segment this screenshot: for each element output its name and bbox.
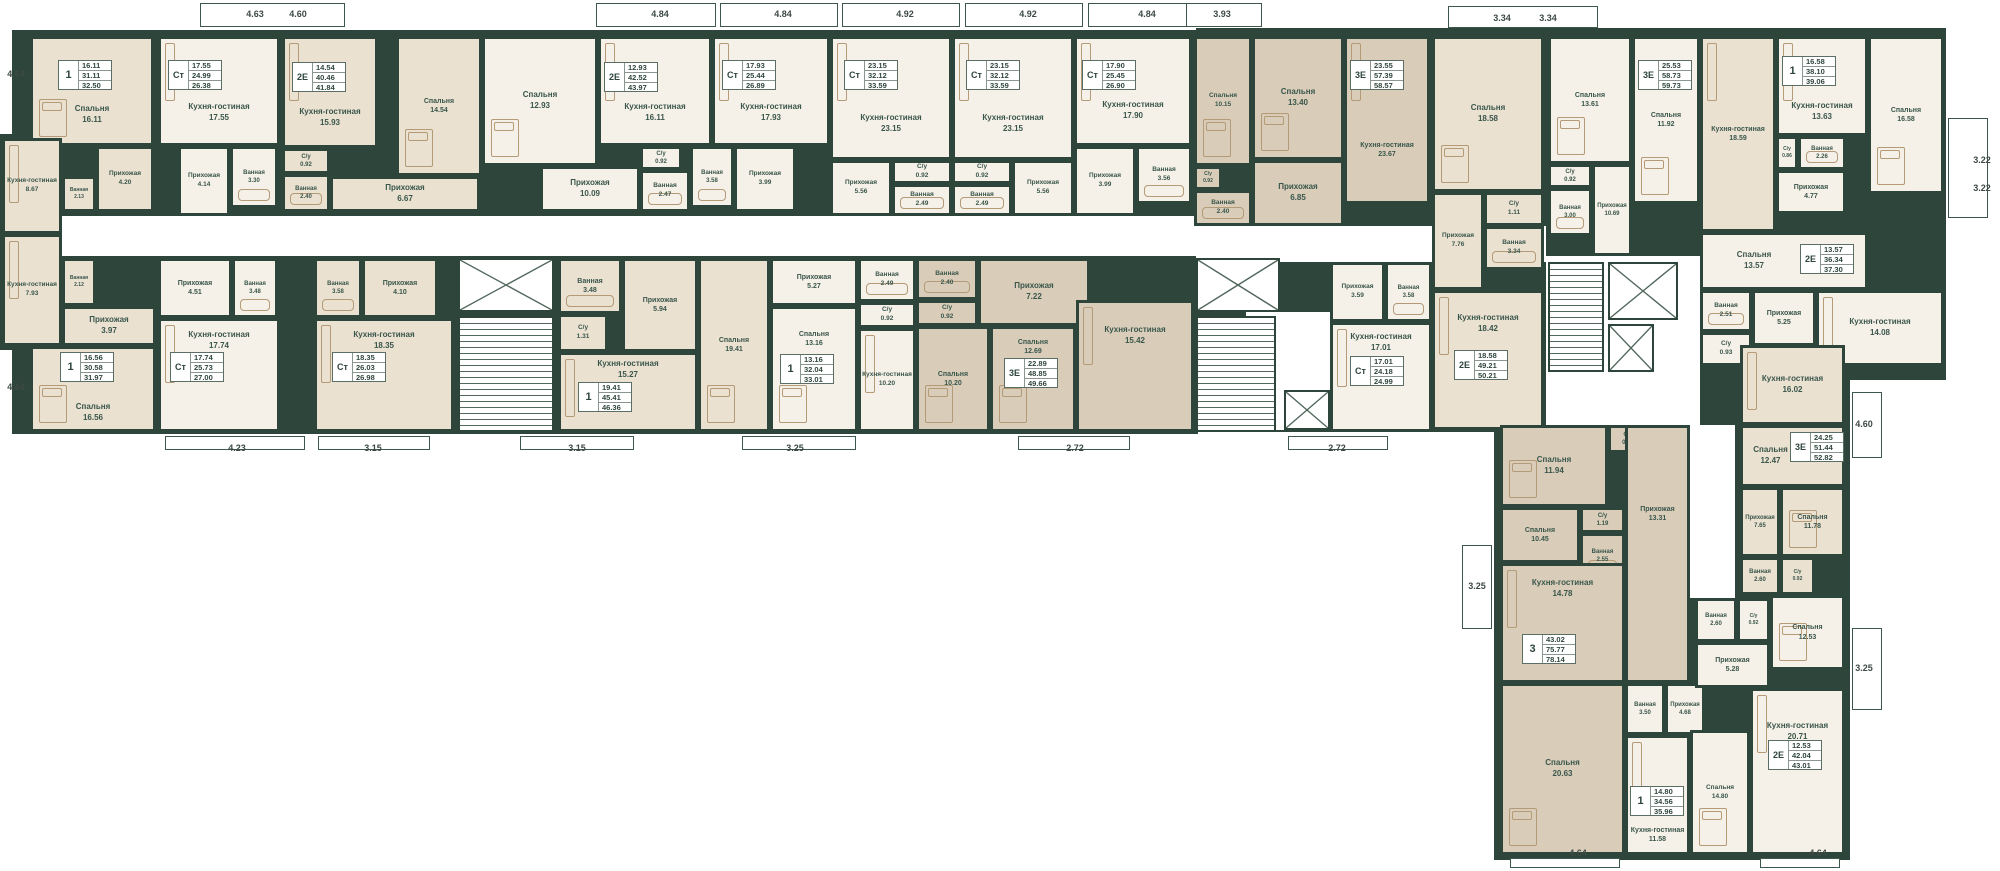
room-label: Ванная3.56 [1152, 166, 1176, 184]
room-name: Ванная [1714, 302, 1738, 311]
room-label: Спальня16.56 [76, 402, 111, 424]
room-label: Кухня-гостиная10.20 [862, 371, 912, 389]
room-area: 20.63 [1545, 769, 1580, 780]
room-name: С/у [655, 150, 667, 158]
room: Ванная3.00 [1548, 188, 1592, 236]
room-name: Прихожая [749, 170, 781, 179]
room-name: Ванная [1211, 199, 1235, 208]
room: Спальня14.80 [1690, 730, 1750, 855]
room-label: Кухня-гостиная18.42 [1457, 313, 1518, 335]
room-name: Прихожая [1027, 179, 1059, 188]
room-label: Ванная3.00 [1559, 204, 1581, 220]
unit-area-value: 43.97 [625, 83, 657, 92]
room-name: С/у [1720, 340, 1733, 349]
room: Кухня-гостиная17.93 [712, 36, 830, 146]
room-label: Ванная3.48 [577, 277, 602, 296]
unit-info-box[interactable]: 119.4145.4146.36 [578, 382, 632, 412]
room-area: 4.20 [109, 179, 141, 188]
dimension-label: 3.15 [568, 443, 586, 453]
unit-type-label: 1 [59, 61, 79, 89]
unit-info-box[interactable]: 3Е23.5557.3958.57 [1350, 60, 1404, 90]
kitchen-counter-icon [321, 325, 331, 383]
unit-area-value: 24.99 [189, 71, 221, 81]
room-name: Кухня-гостиная [740, 102, 801, 113]
room-area: 14.78 [1532, 589, 1593, 600]
unit-area-value: 16.56 [81, 353, 113, 363]
room-area: 17.93 [740, 113, 801, 124]
unit-areas: 19.4145.4146.36 [599, 383, 631, 411]
unit-info-box[interactable]: Ст23.1532.1233.59 [844, 60, 898, 90]
room-name: Ванная [1152, 166, 1176, 175]
room-name: Спальня [76, 402, 111, 413]
room-label: Спальня11.92 [1651, 111, 1681, 130]
room-label: Прихожая10.09 [570, 178, 609, 200]
unit-area-value: 26.89 [743, 81, 775, 90]
room: С/у1.11 [1484, 192, 1544, 226]
room-area: 6.67 [385, 194, 424, 205]
unit-area-value: 27.00 [191, 373, 223, 382]
room: Спальня13.61 [1548, 36, 1632, 164]
unit-area-value: 25.53 [1659, 61, 1691, 71]
unit-info-box[interactable]: Ст17.0124.1824.99 [1350, 356, 1404, 386]
room: Прихожая5.27 [770, 258, 858, 306]
room: Кухня-гостиная13.63 [1776, 36, 1868, 136]
room-area: 4.77 [1794, 192, 1829, 201]
unit-area-value: 42.04 [1789, 751, 1821, 761]
room: Ванная2.47 [640, 170, 690, 212]
unit-areas: 23.1532.1233.59 [987, 61, 1019, 89]
room-area: 0.92 [976, 172, 989, 181]
room-name: Спальня [1737, 250, 1772, 261]
room-name: Кухня-гостиная [188, 330, 249, 341]
unit-type-label: 1 [1783, 57, 1803, 85]
unit-area-value: 40.46 [313, 73, 345, 83]
room-label: Прихожая3.99 [749, 170, 781, 188]
room-area: 8.67 [7, 186, 57, 195]
kitchen-counter-icon [1747, 352, 1757, 410]
room-name: С/у [881, 306, 894, 315]
room-name: Спальня [1545, 758, 1580, 769]
dimension-label: 4.64 [7, 69, 25, 79]
room-name: Ванная [875, 271, 899, 280]
room-area: 2.40 [295, 193, 317, 201]
room: Прихожая5.28 [1695, 642, 1770, 688]
unit-type-label: Ст [333, 353, 353, 381]
room-label: Спальня12.53 [1792, 623, 1822, 642]
room-area: 0.86 [1782, 153, 1792, 160]
balcony-outline [1448, 6, 1598, 28]
room-label: С/у0.92 [1749, 613, 1759, 627]
room-label: Ванная2.49 [875, 271, 899, 289]
room: Спальня10.20 [916, 326, 990, 432]
room-name: Спальня [1706, 784, 1734, 793]
room-area: 13.31 [1640, 514, 1675, 523]
pillow-icon [710, 388, 730, 397]
balcony-outline [1948, 118, 1988, 218]
room-name: Прихожая [383, 279, 418, 288]
room: С/у1.19 [1580, 507, 1625, 533]
room: Прихожая6.67 [330, 176, 480, 212]
pillow-icon [1702, 811, 1722, 820]
unit-area-value: 39.06 [1803, 77, 1835, 86]
room-area: 17.74 [188, 341, 249, 352]
room-area: 3.34 [1502, 248, 1526, 257]
unit-area-value: 48.85 [1025, 369, 1057, 379]
unit-info-box[interactable]: Ст23.1532.1233.59 [966, 60, 1020, 90]
room-area: 3.50 [1634, 709, 1656, 717]
unit-type-label: Ст [169, 61, 189, 89]
room: Прихожая4.68 [1665, 683, 1705, 735]
unit-area-value: 26.90 [1103, 81, 1135, 90]
room-label: Кухня-гостиная23.67 [1360, 141, 1414, 160]
room-label: С/у0.93 [1720, 340, 1733, 358]
room-name: Прихожая [1442, 232, 1474, 241]
unit-info-box[interactable]: Ст17.7425.7327.00 [170, 352, 224, 382]
room-name: Ванная [327, 280, 349, 288]
unit-type-label: Ст [967, 61, 987, 89]
room-name: Кухня-гостиная [299, 107, 360, 118]
unit-type-label: 1 [1631, 787, 1651, 815]
room-label: Кухня-гостиная23.15 [982, 113, 1043, 135]
unit-info-box[interactable]: 2Е12.5342.0443.01 [1768, 740, 1822, 770]
room-label: Прихожая4.68 [1670, 701, 1700, 717]
room-label: Кухня-гостиная11.58 [1631, 826, 1685, 845]
room-name: С/у [1203, 171, 1213, 178]
room-name: Прихожая [1278, 182, 1317, 193]
dimension-label: 3.34 [1539, 13, 1557, 23]
dimension-label: 4.84 [1138, 9, 1156, 19]
room-area: 4.51 [178, 288, 213, 297]
room-label: Спальня12.69 [1018, 338, 1048, 357]
room: Ванная3.48 [232, 258, 278, 318]
room-area: 13.63 [1791, 112, 1852, 123]
unit-areas: 22.8948.8549.66 [1025, 359, 1057, 387]
room: Ванная2.40 [916, 258, 978, 300]
room-label: Ванная2.13 [70, 187, 88, 201]
unit-area-value: 34.56 [1651, 797, 1683, 807]
room-label: Прихожая3.97 [89, 315, 128, 337]
room-label: Спальня10.20 [938, 370, 968, 389]
room-label: С/у1.31 [577, 324, 590, 342]
room: Спальня10.45 [1500, 507, 1580, 563]
unit-info-box[interactable]: 116.5838.1039.06 [1782, 56, 1836, 86]
room: Ванная2.13 [62, 176, 96, 212]
room-area: 0.93 [1720, 349, 1733, 358]
room-area: 16.58 [1891, 115, 1921, 124]
room-label: Прихожая5.94 [643, 296, 678, 315]
room-name: С/у [1749, 613, 1759, 620]
unit-info-box[interactable]: 3Е22.8948.8549.66 [1004, 358, 1058, 388]
room-name: Кухня-гостиная [1532, 578, 1593, 589]
room-name: Ванная [70, 275, 88, 282]
unit-area-value: 50.21 [1475, 371, 1507, 380]
room-area: 7.65 [1745, 522, 1775, 530]
unit-area-value: 16.11 [79, 61, 111, 71]
unit-info-box[interactable]: 116.5630.5831.97 [60, 352, 114, 382]
room-area: 2.60 [1749, 576, 1771, 584]
room-label: Кухня-гостиная15.42 [1104, 325, 1165, 347]
room-name: Ванная [244, 280, 266, 288]
dimension-label: 4.64 [7, 382, 25, 392]
unit-areas: 13.5736.3437.30 [1821, 245, 1853, 273]
dimension-label: 4.63 [246, 9, 264, 19]
room-name: Кухня-гостиная [982, 113, 1043, 124]
room: Спальня20.63 [1500, 683, 1625, 855]
room-label: Кухня-гостиная7.93 [7, 281, 57, 299]
room-label: Спальня16.11 [75, 104, 110, 126]
pillow-icon [1002, 388, 1022, 397]
room-name: Ванная [910, 191, 934, 200]
unit-areas: 18.3526.0326.98 [353, 353, 385, 381]
dimension-label: 4.92 [1019, 9, 1037, 19]
unit-type-label: Ст [171, 353, 191, 381]
unit-area-value: 26.03 [353, 363, 385, 373]
unit-area-value: 17.55 [189, 61, 221, 71]
room-area: 2.47 [653, 191, 677, 200]
room: Спальня11.94 [1500, 425, 1608, 507]
room-area: 12.69 [1018, 347, 1048, 356]
room: Ванная3.34 [1484, 226, 1544, 270]
room-label: С/у0.92 [300, 153, 312, 169]
room-area: 23.67 [1360, 150, 1414, 159]
room-name: Спальня [719, 336, 749, 345]
room-area: 3.48 [577, 286, 602, 295]
unit-info-box[interactable]: 3Е25.5358.7359.73 [1638, 60, 1692, 90]
room-area: 3.99 [1089, 181, 1121, 190]
room-label: С/у0.92 [655, 150, 667, 166]
room-name: Прихожая [385, 183, 424, 194]
room-label: Прихожая4.51 [178, 279, 213, 298]
unit-info-box[interactable]: 2Е14.5440.4641.84 [292, 62, 346, 92]
room-name: Прихожая [89, 315, 128, 326]
unit-type-label: 2Е [1801, 245, 1821, 273]
room-name: Прихожая [570, 178, 609, 189]
room-label: Спальня12.93 [523, 90, 558, 112]
corridor [16, 216, 1196, 256]
room-label: Ванная2.26 [1811, 145, 1833, 161]
room-label: Ванная3.30 [243, 169, 265, 185]
room: Прихожая6.85 [1252, 160, 1344, 226]
unit-info-box[interactable]: 113.1632.0433.01 [780, 354, 834, 384]
unit-areas: 13.1632.0433.01 [801, 355, 833, 383]
room: Кухня-гостиная7.93 [2, 234, 62, 346]
room: Кухня-гостиная18.59 [1700, 36, 1776, 232]
kitchen-counter-icon [1439, 297, 1449, 355]
room: Кухня-гостиная10.20 [858, 328, 916, 432]
room-name: Прихожая [1794, 183, 1829, 192]
room-name: Спальня [1753, 445, 1788, 456]
unit-type-label: Ст [723, 61, 743, 89]
room-name: Прихожая [1640, 505, 1675, 514]
room-name: Спальня [1281, 87, 1316, 98]
elevator [458, 258, 554, 312]
room-label: С/у0.92 [916, 163, 929, 181]
room-area: 3.58 [701, 177, 723, 185]
room-label: Прихожая3.59 [1341, 283, 1373, 301]
room-area: 16.11 [75, 115, 110, 126]
unit-info-box[interactable]: Ст17.9025.4526.90 [1082, 60, 1136, 90]
room: Прихожая7.22 [978, 258, 1090, 326]
unit-area-value: 23.15 [865, 61, 897, 71]
room-label: С/у0.92 [976, 163, 989, 181]
room-area: 11.78 [1797, 522, 1827, 531]
room: Ванная2.40 [282, 174, 330, 212]
room-area: 3.56 [1152, 175, 1176, 184]
room: Ванная3.58 [314, 258, 362, 318]
unit-info-box[interactable]: 2Е13.5736.3437.30 [1800, 244, 1854, 274]
dimension-label: 4.84 [651, 9, 669, 19]
room-name: Ванная [1502, 239, 1526, 248]
room-label: Ванная2.40 [935, 270, 959, 288]
room-area: 3.58 [1398, 292, 1420, 300]
unit-type-label: 3Е [1351, 61, 1371, 89]
room-name: Прихожая [1670, 701, 1700, 709]
room-area: 0.92 [916, 172, 929, 181]
room-name: Кухня-гостиная [624, 102, 685, 113]
room: Ванная2.49 [952, 184, 1012, 216]
unit-area-value: 38.10 [1803, 67, 1835, 77]
room-area: 14.80 [1706, 793, 1734, 802]
stairs [458, 316, 554, 432]
unit-type-label: 2Е [1769, 741, 1789, 769]
room-area: 5.56 [1027, 188, 1059, 197]
room-area: 3.99 [749, 179, 781, 188]
room-label: Прихожая10.69 [1597, 202, 1627, 218]
unit-area-value: 57.39 [1371, 71, 1403, 81]
room-name: Кухня-гостиная [7, 281, 57, 290]
room: Прихожая5.56 [830, 160, 892, 216]
room-name: С/у [1564, 168, 1576, 176]
pillow-icon [1560, 120, 1580, 129]
room-name: Спальня [75, 104, 110, 115]
unit-area-value: 31.11 [79, 71, 111, 81]
dimension-label: 3.25 [786, 443, 804, 453]
bathtub-icon [322, 299, 354, 311]
balcony-outline [1760, 858, 1840, 868]
room-area: 16.11 [624, 113, 685, 124]
pillow-icon [1512, 811, 1532, 820]
room-area: 16.02 [1762, 385, 1823, 396]
room: Прихожая7.65 [1740, 487, 1780, 557]
room-label: С/у0.92 [1793, 569, 1803, 583]
pillow-icon [1206, 122, 1226, 131]
pillow-icon [494, 122, 514, 131]
unit-area-value: 43.01 [1789, 761, 1821, 770]
unit-area-value: 25.45 [1103, 71, 1135, 81]
unit-info-box[interactable]: 3Е24.2551.4452.82 [1790, 432, 1844, 462]
room-name: Ванная [935, 270, 959, 279]
unit-area-value: 16.58 [1803, 57, 1835, 67]
unit-info-box[interactable]: 116.1131.1132.50 [58, 60, 112, 90]
room-label: Прихожая7.76 [1442, 232, 1474, 250]
unit-area-value: 17.90 [1103, 61, 1135, 71]
room: Прихожая7.76 [1432, 192, 1484, 290]
unit-info-box[interactable]: 343.0275.7778.14 [1522, 634, 1576, 664]
unit-area-value: 22.89 [1025, 359, 1057, 369]
room: Ванная3.58 [1385, 262, 1432, 322]
room-area: 16.56 [76, 413, 111, 424]
room-label: Ванная3.58 [1398, 284, 1420, 300]
unit-type-label: 2Е [605, 63, 625, 91]
room: Ванная3.56 [1136, 146, 1192, 204]
room: Ванная2.26 [1798, 136, 1846, 170]
room: Спальня13.40 [1252, 36, 1344, 160]
unit-info-box[interactable]: 2Е12.9342.5243.97 [604, 62, 658, 92]
room: Спальня18.58 [1432, 36, 1544, 192]
pillow-icon [408, 132, 428, 141]
pillow-icon [42, 388, 62, 397]
unit-area-value: 24.99 [1371, 377, 1403, 386]
room-label: Прихожая3.99 [1089, 172, 1121, 190]
room-label: Спальня12.47 [1753, 445, 1788, 467]
room-label: Спальня13.16 [799, 330, 829, 349]
room: Прихожая3.99 [1074, 146, 1136, 216]
unit-area-value: 13.16 [801, 355, 833, 365]
room-name: Кухня-гостиная [1767, 721, 1828, 732]
room-area: 0.92 [881, 315, 894, 324]
room-name: Ванная [1811, 145, 1833, 153]
unit-info-box[interactable]: 114.8034.5635.96 [1630, 786, 1684, 816]
room-label: Спальня14.54 [424, 97, 454, 116]
dimension-label: 4.84 [774, 9, 792, 19]
unit-area-value: 24.18 [1371, 367, 1403, 377]
room-area: 2.26 [1811, 153, 1833, 161]
room-area: 2.40 [1211, 208, 1235, 217]
pillow-icon [1512, 463, 1532, 472]
bathtub-icon [238, 189, 270, 201]
unit-info-box[interactable]: Ст17.9325.4426.89 [722, 60, 776, 90]
room-label: Ванная3.34 [1502, 239, 1526, 257]
room-area: 17.01 [1350, 343, 1411, 354]
room-area: 2.40 [935, 279, 959, 288]
room-name: Ванная [1398, 284, 1420, 292]
room-label: Прихожая7.65 [1745, 514, 1775, 530]
room-area: 2.49 [910, 200, 934, 209]
room-label: С/у0.92 [881, 306, 894, 324]
room-label: Ванная2.51 [1714, 302, 1738, 320]
unit-areas: 12.5342.0443.01 [1789, 741, 1821, 769]
dimension-label: 4.60 [289, 9, 307, 19]
unit-info-box[interactable]: Ст17.5524.9926.38 [168, 60, 222, 90]
room-name: Кухня-гостиная [597, 359, 658, 370]
room-label: Ванная2.49 [970, 191, 994, 209]
unit-areas: 17.7425.7327.00 [191, 353, 223, 381]
unit-info-box[interactable]: Ст18.3526.0326.98 [332, 352, 386, 382]
unit-areas: 17.5524.9926.38 [189, 61, 221, 89]
room-area: 0.92 [655, 158, 667, 166]
unit-areas: 25.5358.7359.73 [1659, 61, 1691, 89]
dimension-label: 4.64 [1569, 848, 1587, 858]
room: Спальня19.41 [698, 258, 770, 432]
room-area: 12.53 [1792, 633, 1822, 642]
unit-areas: 16.5630.5831.97 [81, 353, 113, 381]
dimension-label: 2.72 [1066, 443, 1084, 453]
room-area: 3.00 [1559, 212, 1581, 220]
unit-area-value: 33.59 [987, 81, 1019, 90]
room-label: Кухня-гостиная14.08 [1849, 317, 1910, 339]
stairs [1196, 316, 1276, 432]
unit-type-label: 1 [781, 355, 801, 383]
room-area: 18.59 [1711, 134, 1765, 143]
room-area: 10.69 [1597, 210, 1627, 218]
room-label: Спальня13.57 [1737, 250, 1772, 272]
unit-area-value: 43.02 [1543, 635, 1575, 645]
unit-info-box[interactable]: 2Е18.5849.2150.21 [1454, 350, 1508, 380]
unit-type-label: 3Е [1639, 61, 1659, 89]
room: Ванная2.49 [858, 258, 916, 302]
unit-area-value: 78.14 [1543, 655, 1575, 664]
room-name: Кухня-гостиная [862, 371, 912, 380]
